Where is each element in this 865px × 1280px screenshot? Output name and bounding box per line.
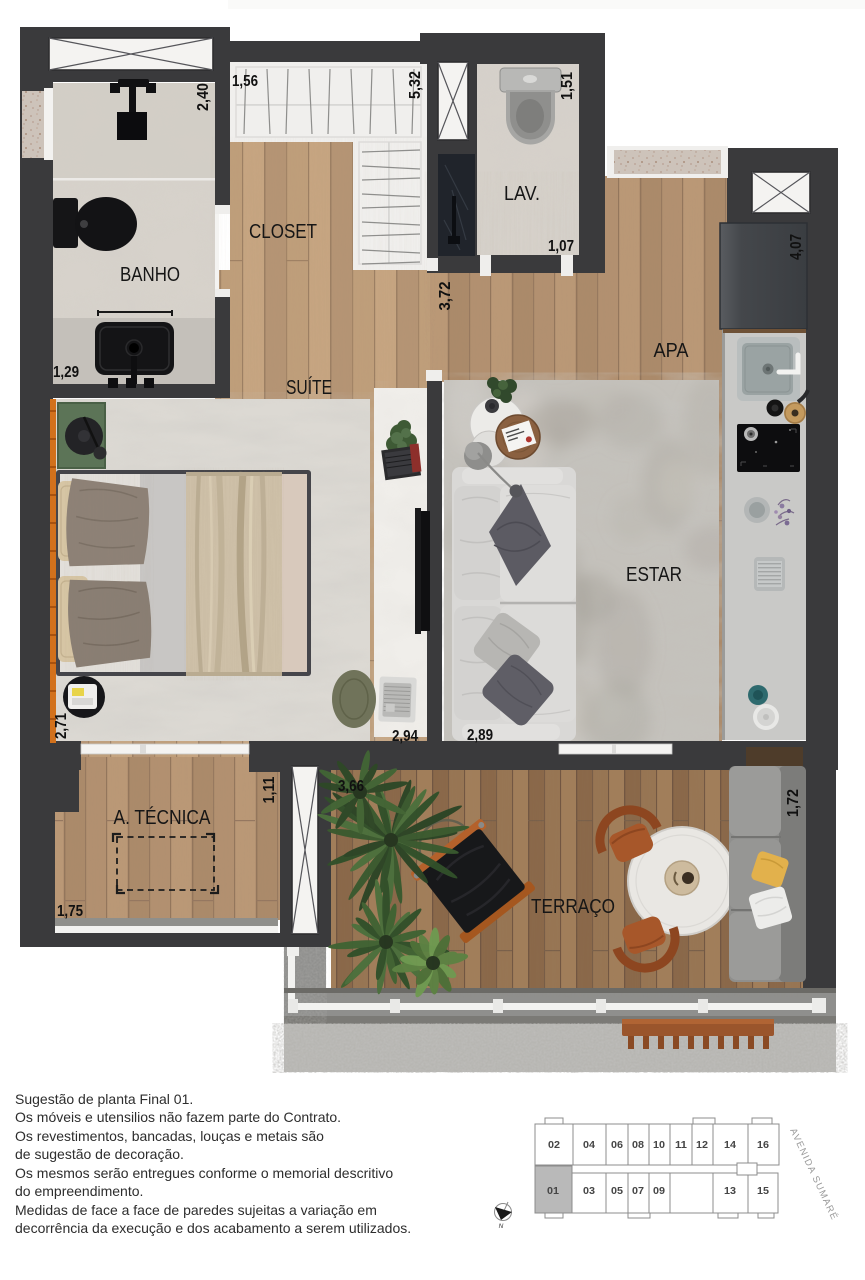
svg-text:APA: APA [654, 340, 689, 362]
svg-text:CLOSET: CLOSET [249, 221, 317, 243]
svg-text:A. TÉCNICA: A. TÉCNICA [114, 806, 211, 829]
svg-text:BANHO: BANHO [120, 264, 180, 286]
svg-text:09: 09 [653, 1185, 665, 1197]
svg-text:TERRAÇO: TERRAÇO [531, 896, 615, 918]
svg-text:15: 15 [757, 1185, 769, 1197]
svg-text:04: 04 [583, 1139, 595, 1151]
svg-text:1,56: 1,56 [232, 73, 258, 90]
svg-text:1,72: 1,72 [785, 789, 802, 817]
svg-text:3,72: 3,72 [437, 282, 454, 311]
svg-text:ESTAR: ESTAR [626, 564, 682, 586]
svg-text:2,94: 2,94 [392, 728, 418, 745]
svg-text:07: 07 [632, 1185, 644, 1197]
svg-text:08: 08 [632, 1139, 644, 1151]
svg-text:03: 03 [583, 1185, 595, 1197]
svg-text:3,66: 3,66 [338, 778, 364, 795]
svg-text:1,11: 1,11 [261, 776, 278, 803]
svg-text:01: 01 [547, 1185, 559, 1197]
svg-text:16: 16 [757, 1139, 769, 1151]
svg-text:02: 02 [548, 1139, 560, 1151]
svg-text:1,51: 1,51 [559, 72, 576, 100]
svg-text:LAV.: LAV. [504, 183, 540, 205]
svg-text:5,32: 5,32 [407, 71, 424, 99]
svg-text:2,89: 2,89 [467, 727, 493, 744]
svg-text:4,07: 4,07 [788, 234, 805, 260]
svg-text:2,40: 2,40 [195, 83, 212, 111]
svg-text:2,71: 2,71 [53, 713, 70, 739]
svg-text:10: 10 [653, 1139, 665, 1151]
svg-text:1,07: 1,07 [548, 238, 574, 255]
svg-text:SUÍTE: SUÍTE [286, 376, 332, 399]
svg-text:14: 14 [724, 1139, 736, 1151]
svg-text:1,75: 1,75 [57, 903, 83, 920]
svg-text:12: 12 [696, 1139, 708, 1151]
svg-text:1,29: 1,29 [53, 364, 79, 381]
svg-text:13: 13 [724, 1185, 736, 1197]
svg-text:11: 11 [675, 1139, 687, 1151]
svg-text:N: N [499, 1223, 504, 1230]
svg-text:05: 05 [611, 1185, 623, 1197]
svg-text:06: 06 [611, 1139, 623, 1151]
